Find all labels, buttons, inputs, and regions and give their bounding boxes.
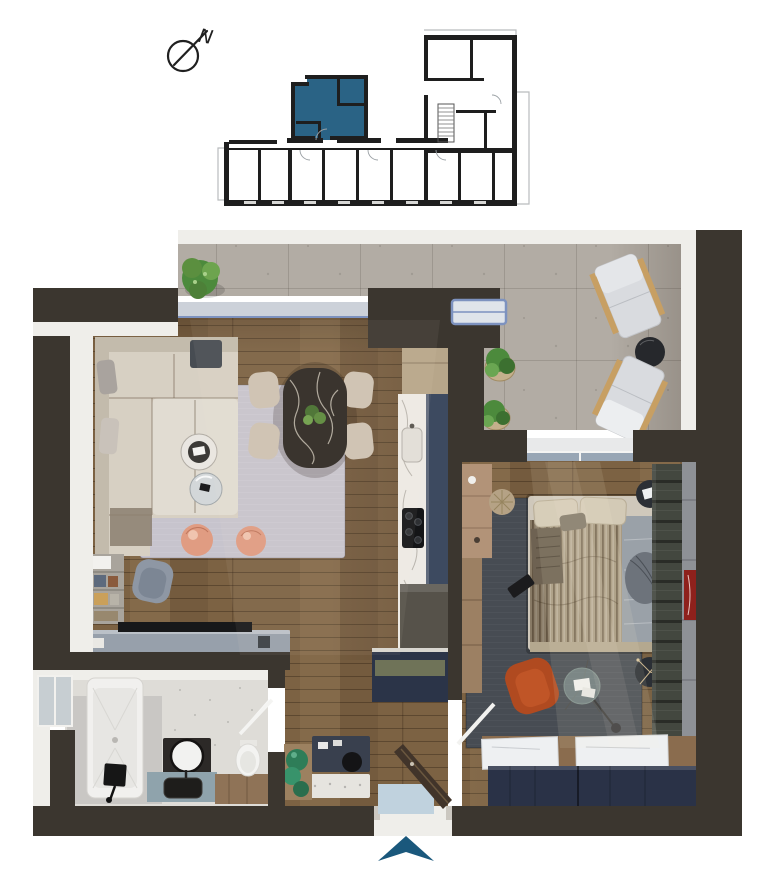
apartment-plan xyxy=(33,230,742,836)
wall-bedroom-top-right xyxy=(633,430,696,462)
bathroom xyxy=(65,670,270,806)
wall-left xyxy=(33,288,70,672)
compass-north-label: N xyxy=(197,25,215,49)
kitchen-lower-block xyxy=(400,584,450,654)
dresser-top xyxy=(481,737,558,770)
wall-right xyxy=(696,230,742,836)
compass: N xyxy=(168,25,215,71)
dresser-front xyxy=(488,766,696,810)
decor-cup xyxy=(468,476,476,484)
entrance-arrow xyxy=(378,836,434,861)
balcony-bench xyxy=(452,300,506,324)
keyplan-stairwell xyxy=(438,104,454,142)
round-mirror xyxy=(171,740,203,772)
door-handle xyxy=(410,762,414,766)
wall-bottom-left xyxy=(33,806,374,836)
wall-left-lower xyxy=(50,730,75,806)
floor-plan-page: N xyxy=(0,0,768,871)
keyplan-highlighted-unit xyxy=(295,78,366,140)
hall-planter xyxy=(283,744,312,800)
hall-closet-top xyxy=(375,660,445,676)
wall-face-top-left xyxy=(33,322,178,336)
pouf xyxy=(181,524,213,556)
decor-box xyxy=(93,556,111,569)
tufted-wardrobe xyxy=(652,464,682,748)
wall-terrace-side xyxy=(462,317,484,430)
basin xyxy=(164,778,202,798)
sofa-throw xyxy=(110,508,152,546)
building-key-plan xyxy=(218,30,529,206)
bedroom-window xyxy=(527,438,633,461)
wall-bath-right-lower xyxy=(268,752,285,806)
low-dresser xyxy=(462,558,482,693)
terrace-outer-edge xyxy=(178,230,696,244)
hall-bench xyxy=(312,736,370,772)
tv xyxy=(118,622,252,632)
floor-plan-render: N xyxy=(0,0,768,871)
wall-mid-vertical xyxy=(448,288,462,700)
sofa-pillow xyxy=(98,417,119,454)
entrance-arrow-icon xyxy=(378,836,434,861)
keyplan-bottom-row xyxy=(224,138,517,206)
wall-face-left xyxy=(70,322,93,652)
wall-bedroom-top-left xyxy=(448,430,527,462)
keyplan-outline xyxy=(218,148,224,200)
bookshelf xyxy=(90,554,124,624)
terrace-right-edge xyxy=(681,244,696,430)
bathroom-window xyxy=(33,666,75,726)
wall-bath-right-upper xyxy=(268,670,285,688)
backpack xyxy=(342,752,362,772)
keyplan-outline xyxy=(517,92,529,204)
wall-bottom-right xyxy=(452,806,742,836)
